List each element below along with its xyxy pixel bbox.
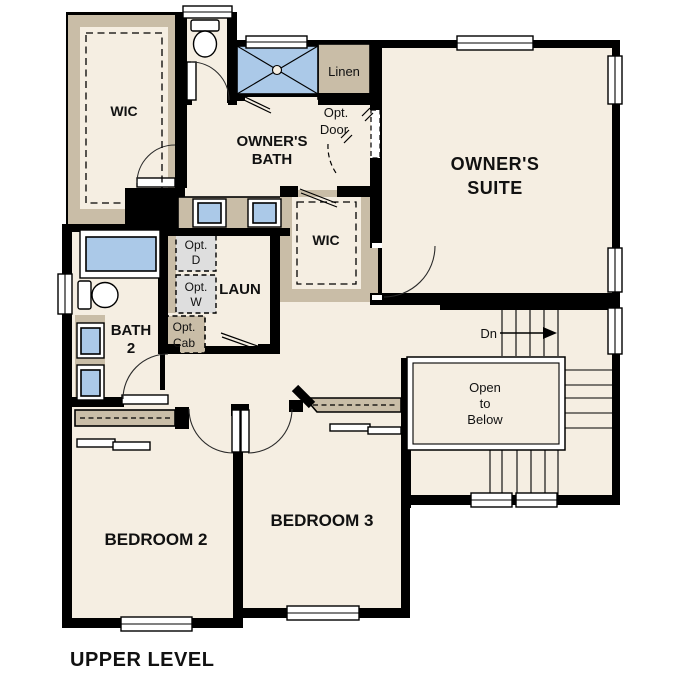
label-wic-master: WIC (110, 103, 137, 119)
label-wic-2: WIC (312, 232, 339, 248)
label-opt-d-1: Opt. (185, 238, 208, 252)
label-opt-door-1: Opt. (324, 105, 349, 120)
bathtub (80, 230, 160, 278)
window (457, 36, 533, 50)
window (121, 617, 192, 631)
label-laundry: LAUN (219, 281, 261, 298)
label-opt-d-2: D (192, 253, 201, 267)
window (58, 274, 72, 314)
toilet-water-closet (191, 20, 219, 57)
label-opt-cab-1: Opt. (173, 320, 196, 334)
label-linen: Linen (328, 64, 360, 79)
window (183, 6, 232, 18)
laundry-wall-strip (168, 233, 176, 313)
label-open-below-1: Open (469, 380, 501, 395)
floor-plan-drawing: WIC OWNER'S BATH Linen Opt. Door OWNER'S… (0, 0, 687, 687)
label-bath-2-2: 2 (127, 340, 135, 357)
floor-plan: WIC OWNER'S BATH Linen Opt. Door OWNER'S… (0, 0, 687, 687)
label-owners-suite-1: OWNER'S (451, 154, 540, 174)
window (516, 493, 557, 507)
label-opt-cab-2: Cab (173, 336, 195, 350)
label-owners-bath-2: BATH (252, 151, 293, 168)
plan-title: UPPER LEVEL (70, 649, 214, 671)
window (608, 308, 622, 354)
label-opt-w-2: W (190, 295, 202, 309)
toilet-bath-2 (78, 281, 118, 309)
window (608, 56, 622, 104)
label-open-below-2: to (480, 396, 491, 411)
label-opt-door-2: Door (320, 122, 349, 137)
window (608, 248, 622, 292)
label-bedroom-3: BEDROOM 3 (271, 511, 374, 530)
window (246, 36, 307, 48)
window (471, 493, 512, 507)
label-opt-w-1: Opt. (185, 280, 208, 294)
label-stairs-down: Dn (480, 326, 497, 341)
label-bath-2-1: BATH (111, 322, 152, 339)
label-open-below-3: Below (467, 412, 503, 427)
window (287, 606, 359, 620)
label-bedroom-2: BEDROOM 2 (105, 530, 208, 549)
label-owners-suite-2: SUITE (467, 178, 523, 198)
bedroom-3-closet (305, 398, 401, 412)
label-owners-bath-1: OWNER'S (236, 133, 307, 150)
